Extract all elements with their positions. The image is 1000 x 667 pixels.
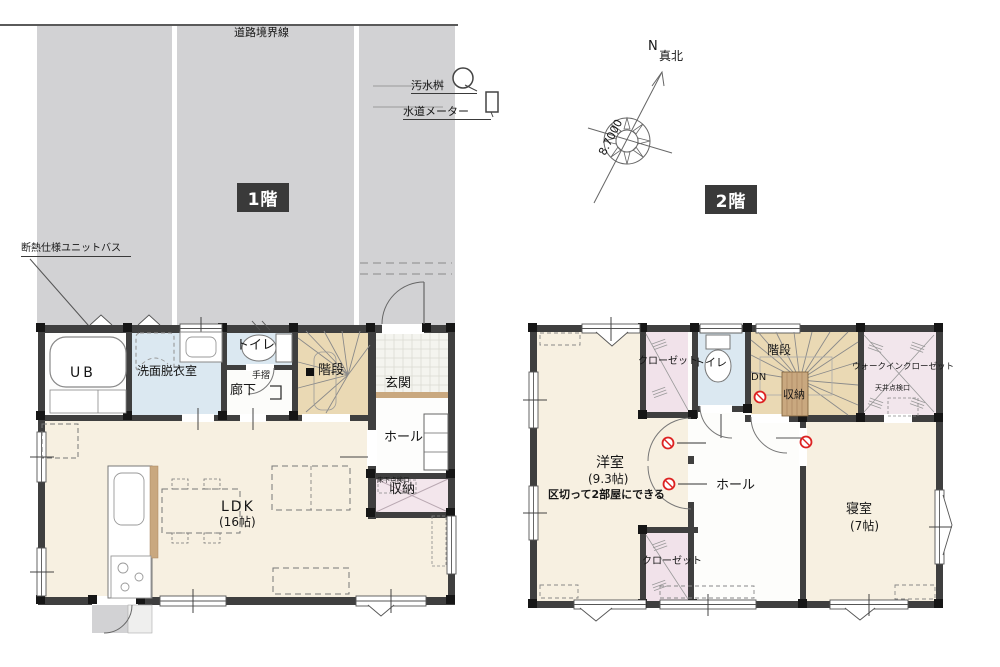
- room-label-bedroom: 寝室: [846, 503, 872, 517]
- room-label-storage2: 収納: [783, 389, 805, 401]
- floor1-plan: [30, 282, 456, 633]
- floor-plan-drawing: [0, 0, 1000, 667]
- road-boundary-label: 道路境界線: [234, 27, 289, 39]
- room-label-western: 洋室: [596, 456, 624, 471]
- ceiling-access-label: 天井点検口: [875, 385, 910, 392]
- room-label-stairs2: 階段: [767, 344, 791, 357]
- floor2-badge: 2階: [705, 185, 757, 214]
- room-label-ub: UB: [70, 366, 96, 381]
- entrance-step-edge: [376, 392, 448, 398]
- compass-n-label: N: [648, 40, 658, 54]
- room-label-ldk: LDK: [221, 500, 255, 515]
- room-label-stairs1: 階段: [318, 364, 344, 378]
- room-label-washroom: 洗面脱衣室: [137, 365, 197, 378]
- back-door: [92, 605, 152, 633]
- room-label-hall1: ホール: [384, 431, 423, 445]
- true-north-label: 真北: [659, 50, 683, 63]
- room-label-storage1: 収納: [389, 483, 415, 497]
- room-label-ldk-size: (16帖): [219, 516, 256, 529]
- room-label-hall2: ホール: [716, 479, 755, 493]
- room-label-western-size: (9.3帖): [588, 473, 628, 486]
- handrail-label: 手摺: [252, 372, 270, 381]
- shoe-cabinet: [424, 414, 448, 470]
- room-label-wic: ウォークインクローゼット: [852, 363, 954, 372]
- stairs-down-label: DN: [751, 373, 766, 384]
- bath-spec-note: 断熱仕様ユニットバス: [21, 244, 131, 257]
- kitchen-counter: [108, 466, 158, 598]
- north-compass: [588, 72, 672, 203]
- room-label-entrance: 玄関: [385, 377, 411, 391]
- stairs1-marker: [306, 368, 314, 376]
- room-label-corridor: 廊下: [230, 384, 256, 398]
- room-label-closet-bottom: クローゼット: [642, 557, 702, 568]
- room-label-bedroom-size: (7帖): [850, 520, 879, 533]
- water-meter-label: 水道メーター: [403, 106, 491, 120]
- room-note-western: 区切って2部屋にできる: [548, 489, 665, 501]
- vanity-sink: [180, 332, 222, 362]
- floor1-badge: 1階: [237, 183, 289, 212]
- sewage-basin-label: 汚水桝: [411, 80, 477, 94]
- room-label-closet-top: クローゼット: [638, 357, 698, 368]
- room-label-toilet2: トイレ: [694, 357, 727, 369]
- floor-plan-page: 道路境界線 汚水桝 水道メーター 断熱仕様ユニットバス 1階 2階 N 真北 8…: [0, 0, 1000, 667]
- room-label-toilet1: トイレ: [236, 339, 275, 353]
